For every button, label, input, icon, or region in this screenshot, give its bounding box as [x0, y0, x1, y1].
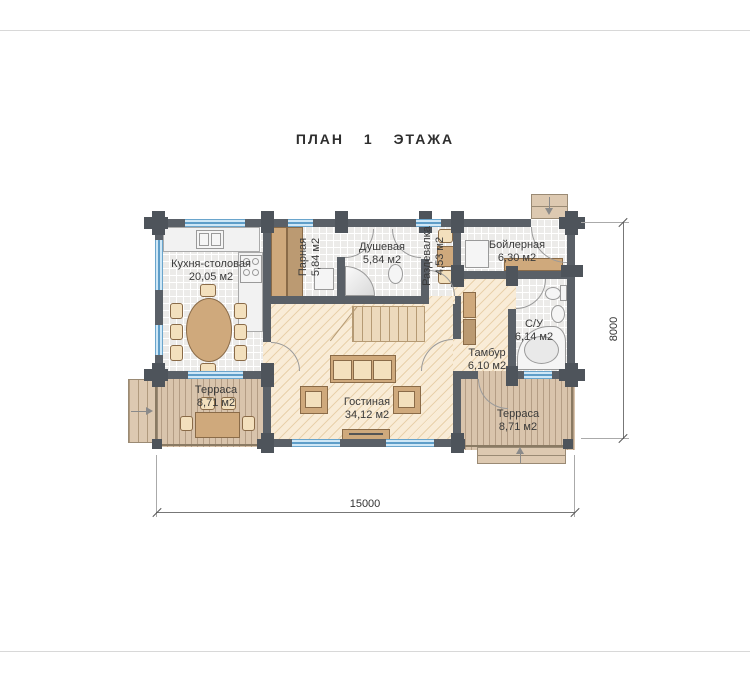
timber-joint [565, 363, 578, 387]
kitchen-sink-bowl [211, 233, 221, 246]
entry-arrow-up-icon [520, 454, 521, 463]
step-line [478, 455, 565, 456]
tv [349, 433, 383, 435]
sofa-cushion [353, 360, 372, 380]
entry-arrow-left-icon [131, 411, 146, 412]
dim-label-height: 8000 [608, 294, 620, 364]
timber-joint [144, 217, 168, 229]
vestibule-closet [463, 292, 476, 318]
terrace-edge [155, 444, 271, 446]
wall-segment [313, 219, 416, 227]
room-label-living: Гостиная34,12 м2 [307, 396, 427, 422]
entry-arrow-left-icon [146, 407, 153, 415]
dim-extension [156, 455, 157, 517]
terrace-post [152, 439, 162, 449]
room-label-terrace-left: Терраса8,71 м2 [166, 384, 266, 410]
timber-joint [451, 211, 464, 233]
page-title: ПЛАН 1 ЭТАЖА [0, 131, 750, 147]
dim-label-width: 15000 [320, 498, 410, 510]
sheet-border-top [0, 30, 750, 31]
vestibule-closet [463, 319, 476, 345]
wall-segment [155, 290, 163, 325]
timber-joint [261, 211, 274, 233]
window [524, 371, 552, 379]
dining-table [186, 298, 232, 362]
sauna-bench [271, 227, 287, 298]
toilet-bowl [545, 287, 561, 300]
timber-joint [261, 433, 274, 453]
terrace-edge [453, 445, 573, 447]
timber-joint [451, 265, 464, 287]
dining-chair [170, 303, 183, 319]
window [185, 219, 245, 227]
window [386, 439, 434, 447]
terrace-edge [571, 379, 573, 447]
dining-chair [234, 303, 247, 319]
room-label-boiler: Бойлерная6,30 м2 [457, 239, 577, 265]
room-label-sauna: Парная5,84 м2 [297, 225, 323, 289]
kitchen-sink-bowl [199, 233, 209, 246]
dining-chair [234, 324, 247, 340]
shower-sink [388, 264, 403, 284]
timber-joint [561, 265, 583, 277]
room-label-terrace-right: Терраса8,71 м2 [468, 408, 568, 434]
wall-segment [453, 304, 461, 339]
terrace-edge [155, 379, 157, 446]
dining-chair [200, 284, 216, 297]
room-label-wc: С/У6,14 м2 [494, 318, 574, 344]
wall-segment [263, 296, 429, 304]
room-label-dressing: Раздевалка4,53 м2 [421, 220, 447, 292]
staircase [352, 306, 425, 342]
dim-line-width [156, 512, 575, 513]
room-label-vestibule: Тамбур6,10 м2 [447, 347, 527, 373]
terrace-table [195, 412, 240, 438]
room-label-kitchen: Кухня-столовая20,05 м2 [151, 258, 271, 284]
wall-segment [340, 439, 386, 447]
window [292, 439, 340, 447]
timber-joint [152, 363, 165, 387]
dining-chair [234, 345, 247, 361]
dim-extension [574, 455, 575, 517]
wall-segment [455, 296, 461, 304]
terrace-post [563, 439, 573, 449]
terrace-chair [242, 416, 255, 431]
floor-plan-sheet: ПЛАН 1 ЭТАЖА [0, 0, 750, 687]
dining-chair [170, 324, 183, 340]
sheet-border-bottom [0, 651, 750, 652]
sofa-cushion [373, 360, 392, 380]
entry-arrow-down-icon [549, 197, 550, 208]
window [155, 325, 163, 355]
dim-line-height [623, 222, 624, 439]
timber-joint [451, 433, 464, 453]
toilet-tank [560, 285, 567, 301]
dining-chair [170, 345, 183, 361]
entry-arrow-down-icon [545, 208, 553, 215]
entry-arrow-up-icon [516, 447, 524, 454]
window [188, 371, 243, 379]
terrace-chair [180, 416, 193, 431]
sofa-cushion [333, 360, 352, 380]
